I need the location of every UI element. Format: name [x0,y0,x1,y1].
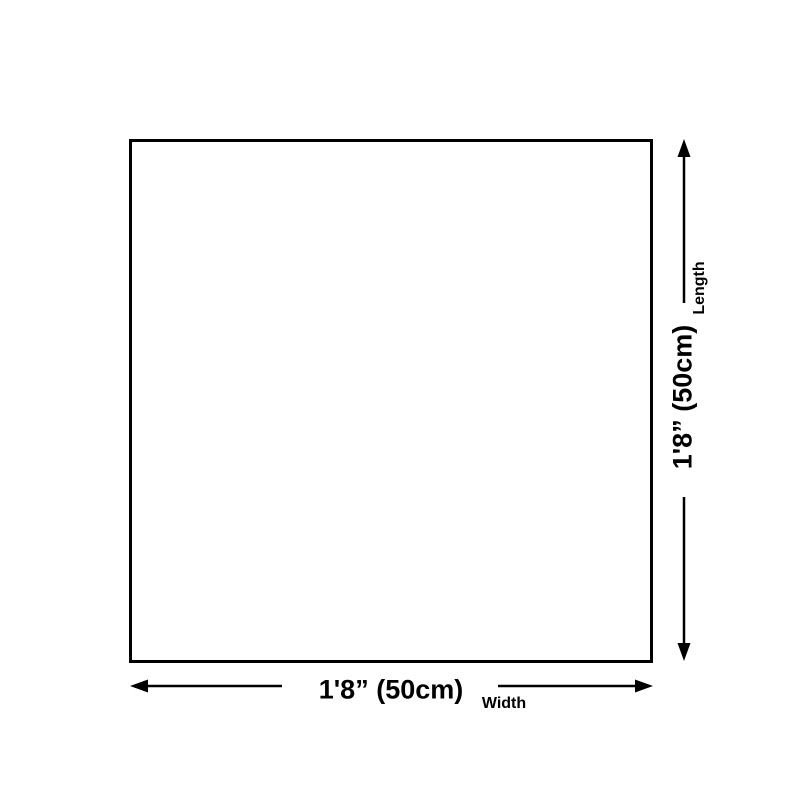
arrow-down-icon [677,497,691,661]
arrow-right-icon [498,679,653,693]
length-axis-label: Length [692,261,708,314]
arrow-up-icon [677,139,691,303]
width-dimension-value: 1'8” (50cm) [319,677,464,704]
arrow-left-icon [130,679,282,693]
width-axis-label: Width [482,696,526,712]
length-dimension-value: 1'8” (50cm) [670,325,697,470]
product-outline [129,139,653,663]
dimension-diagram: Length 1'8” (50cm) 1'8” (50cm) Width [0,0,800,800]
